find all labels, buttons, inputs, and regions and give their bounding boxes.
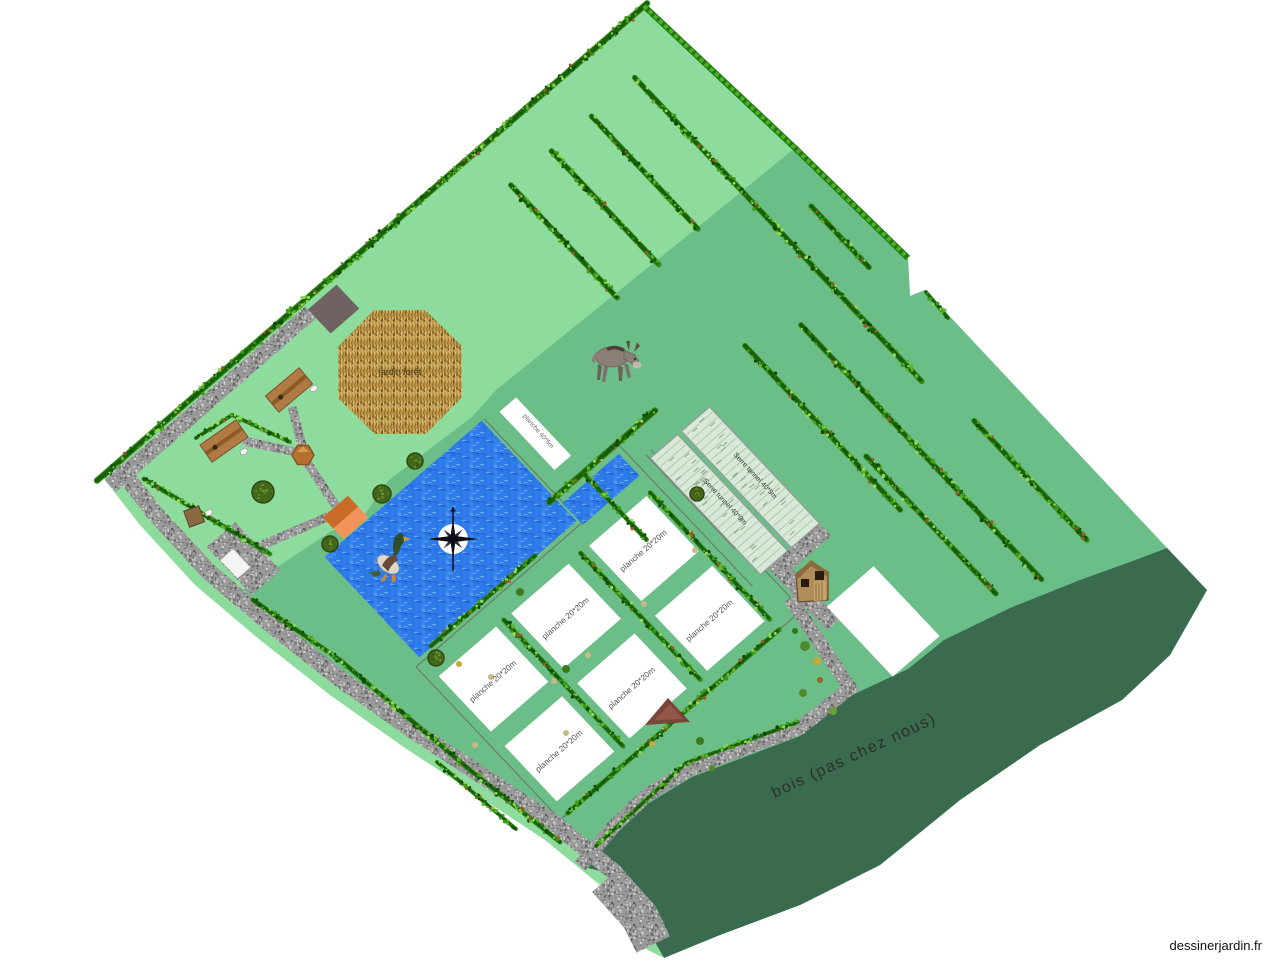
- svg-text:jardin forêt: jardin forêt: [378, 367, 422, 377]
- svg-text:dessinerjardin.fr: dessinerjardin.fr: [1170, 938, 1263, 953]
